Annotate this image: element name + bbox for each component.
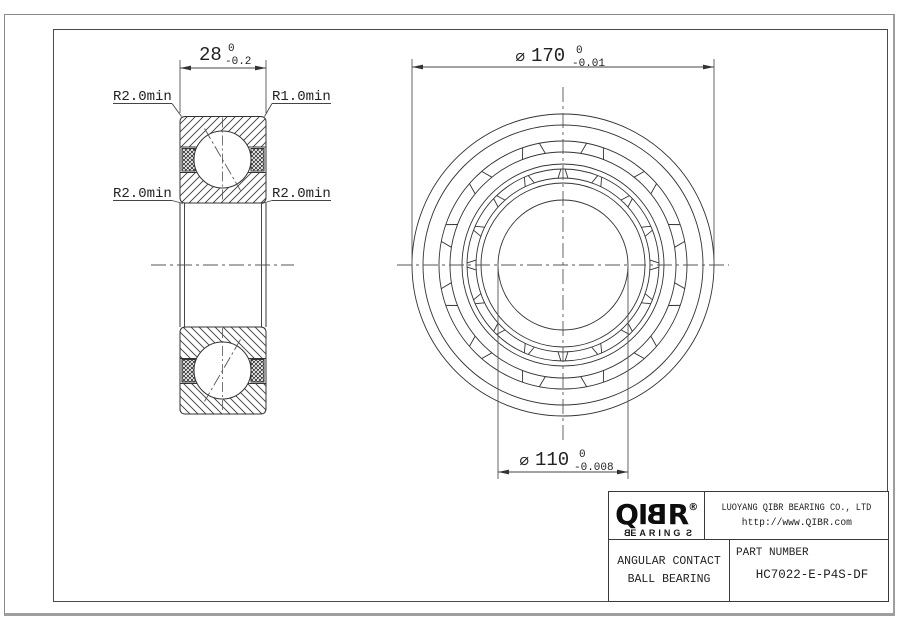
phi-symbol: ⌀ xyxy=(515,46,525,65)
cage-pocket-edge xyxy=(634,353,644,359)
drawing-sheet: 28 0 -0.2 R2.0min R1.0min R2.0min R2.0mi… xyxy=(0,0,900,636)
cage-pocket-edge xyxy=(651,336,657,346)
registered-mark: ® xyxy=(688,502,698,513)
bore-dim-tol-lower: -0.008 xyxy=(574,462,614,474)
cage-pocket-edge xyxy=(641,303,651,304)
cage-pocket-edge xyxy=(474,294,481,300)
cage-section xyxy=(251,149,264,172)
cage-pocket-edge xyxy=(441,241,451,247)
logo-letter: B xyxy=(647,502,667,528)
logo-letter: R xyxy=(668,498,689,531)
cage-pocket-edge xyxy=(601,177,602,187)
cage-section xyxy=(182,149,195,172)
cage-pocket-edge xyxy=(641,226,651,227)
cage-pocket-edge xyxy=(528,347,534,354)
width-dim-tol-lower: -0.2 xyxy=(225,56,251,68)
cage-pocket-edge xyxy=(645,294,652,300)
title-block-detail-row: ANGULAR CONTACT BALL BEARING PART NUMBER… xyxy=(609,540,888,601)
product-type-line2: BALL BEARING xyxy=(628,573,711,586)
cage-pocket-edge xyxy=(558,169,561,178)
cage-pocket-edge xyxy=(475,226,485,227)
radius-label-top-left: R2.0min xyxy=(113,89,172,105)
cage-pocket-edge xyxy=(474,230,481,236)
cage-pocket-edge xyxy=(441,283,451,289)
brand-logo: QIBR® xyxy=(615,495,698,528)
cage-section xyxy=(182,360,195,383)
width-dim-value: 28 xyxy=(199,44,222,66)
cage-pocket-edge xyxy=(592,347,598,354)
cage-pocket-edge xyxy=(592,176,598,183)
bore-dim-tol-upper: 0 xyxy=(579,449,586,461)
cage-pocket-edge xyxy=(494,199,498,207)
cage-pocket-edge xyxy=(528,176,534,183)
part-number-value: HC7022-E-P4S-DF xyxy=(736,568,888,582)
cage-pocket-edge xyxy=(628,323,632,331)
cage-pocket-edge xyxy=(628,199,632,207)
cage-pocket-edge xyxy=(524,343,525,353)
cage-pocket-edge xyxy=(467,260,476,263)
cage-pocket-edge xyxy=(581,377,587,387)
logo-cell: QIBR® BEARINGS xyxy=(609,492,705,539)
cage-pocket-edge xyxy=(565,352,568,361)
cage-pocket-edge xyxy=(482,353,492,359)
cage-pocket-edge xyxy=(650,267,659,270)
width-dim-tol-upper: 0 xyxy=(228,43,235,55)
cage-pocket-edge xyxy=(634,171,644,177)
cage-pocket-edge xyxy=(651,184,657,194)
logo-sub-letter: B xyxy=(621,528,631,538)
part-number-cell: PART NUMBER HC7022-E-P4S-DF xyxy=(730,540,888,601)
radius-label-mid-right: R2.0min xyxy=(272,186,331,202)
bore-dim-value: 110 xyxy=(535,449,569,471)
radius-label-top-right: R1.0min xyxy=(272,89,331,105)
cage-pocket-edge xyxy=(524,177,525,187)
company-name: LUOYANG QIBR BEARING CO., LTD xyxy=(722,502,872,514)
cage-pocket-edge xyxy=(539,143,545,153)
company-cell: LUOYANG QIBR BEARING CO., LTD http://www… xyxy=(705,492,888,539)
cage-pocket-edge xyxy=(469,184,475,194)
logo-sub-letter: S xyxy=(683,528,692,538)
product-type-cell: ANGULAR CONTACT BALL BEARING xyxy=(609,540,730,601)
outer-dim-tol-lower: -0.01 xyxy=(572,58,605,70)
cage-pocket-edge xyxy=(675,241,685,247)
cage-pocket-edge xyxy=(621,196,629,200)
cage-pocket-edge xyxy=(581,143,587,153)
cage-pocket-edge xyxy=(565,169,568,178)
cage-pocket-edge xyxy=(601,343,602,353)
cage-pocket-edge xyxy=(475,303,485,304)
outer-dim-value: 170 xyxy=(531,45,565,67)
front-view-centerlines xyxy=(397,87,729,443)
cage-pocket-edge xyxy=(482,171,492,177)
cage-pocket-edge xyxy=(558,352,561,361)
cage-pocket-edge xyxy=(675,283,685,289)
outer-dim-tol-upper: 0 xyxy=(576,45,583,57)
product-type-line1: ANGULAR CONTACT xyxy=(617,555,721,568)
cage-pocket-edge xyxy=(494,323,498,331)
cage-pocket-edge xyxy=(467,267,476,270)
radius-label-mid-left: R2.0min xyxy=(113,186,172,202)
part-number-label: PART NUMBER xyxy=(736,547,888,559)
title-block-header-row: QIBR® BEARINGS LUOYANG QIBR BEARING CO.,… xyxy=(609,492,888,540)
cage-pocket-edge xyxy=(650,260,659,263)
cage-pocket-edge xyxy=(539,377,545,387)
width-dimension xyxy=(180,60,266,113)
cage-section xyxy=(251,360,264,383)
phi-symbol: ⌀ xyxy=(519,450,529,469)
left-section-view xyxy=(151,117,294,415)
cage-pocket-edge xyxy=(497,196,505,200)
cage-pocket-edge xyxy=(469,336,475,346)
title-block: QIBR® BEARINGS LUOYANG QIBR BEARING CO.,… xyxy=(608,491,889,602)
logo-letter: Q xyxy=(615,498,638,531)
cage-pocket-edge xyxy=(645,230,652,236)
logo-letter: I xyxy=(638,498,647,531)
company-website: http://www.QIBR.com xyxy=(742,517,852,529)
